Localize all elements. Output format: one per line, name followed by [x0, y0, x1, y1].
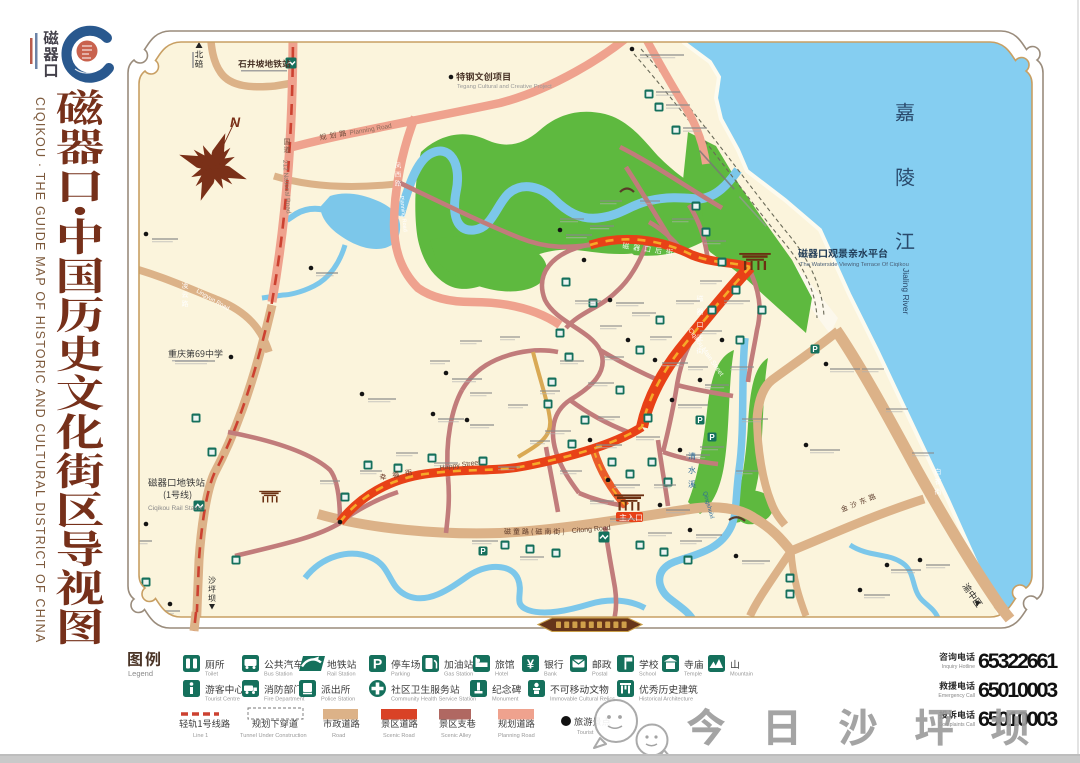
svg-text:P: P [812, 345, 818, 354]
svg-text:Line 1: Line 1 [193, 733, 208, 739]
svg-text:P: P [373, 656, 382, 672]
svg-text:Community Health Service Stati: Community Health Service Station [391, 697, 476, 703]
svg-text:Inquiry Hotline: Inquiry Hotline [942, 664, 975, 670]
svg-text:Bus Station: Bus Station [264, 672, 293, 678]
svg-text:Emergency Call: Emergency Call [938, 693, 975, 699]
svg-text:Tourist Centre: Tourist Centre [205, 697, 240, 703]
svg-text:School: School [639, 672, 656, 678]
svg-text:Monument: Monument [492, 697, 519, 703]
svg-text:Tourist: Tourist [577, 730, 594, 736]
svg-text:Complaints Call: Complaints Call [939, 722, 975, 728]
svg-text:Tegang Cultural and Creative P: Tegang Cultural and Creative Project [457, 84, 552, 90]
svg-text:Scenic Alley: Scenic Alley [441, 733, 471, 739]
svg-text:N: N [230, 114, 241, 130]
svg-text:Planning Road: Planning Road [498, 733, 535, 739]
svg-text:P: P [709, 433, 715, 442]
svg-text:Legend: Legend [128, 669, 153, 678]
svg-text:Hotel: Hotel [495, 672, 508, 678]
svg-text:Fire Department: Fire Department [264, 697, 305, 703]
svg-text:Mountain: Mountain [730, 672, 753, 678]
svg-text:65322661: 65322661 [978, 649, 1058, 673]
svg-text:Tunnel Under Construction: Tunnel Under Construction [240, 733, 307, 739]
svg-text:P: P [480, 547, 486, 556]
svg-text:Police Station: Police Station [321, 697, 355, 703]
svg-text:Postal: Postal [592, 672, 608, 678]
svg-text:Road: Road [332, 733, 345, 739]
svg-text:Historical Architecture: Historical Architecture [639, 697, 693, 703]
svg-text:Bank: Bank [544, 672, 557, 678]
svg-text:CIQIKOU · THE GUIDE MAP OF: CIQIKOU · THE GUIDE MAP OF HISTORIC AND … [33, 97, 47, 643]
svg-text:P: P [697, 416, 703, 425]
svg-text:¥: ¥ [527, 657, 535, 672]
svg-text:Scenic Road: Scenic Road [383, 733, 415, 739]
svg-text:Gas Station: Gas Station [444, 672, 473, 678]
svg-text:Rail Station: Rail Station [327, 672, 356, 678]
svg-text:Toilet: Toilet [205, 672, 219, 678]
svg-text:Jialing River: Jialing River [901, 268, 911, 314]
svg-text:Immovable Cultural Relics: Immovable Cultural Relics [550, 697, 615, 703]
svg-text:Ciqikou Rail Station: Ciqikou Rail Station [148, 505, 205, 512]
svg-text:65010003: 65010003 [978, 678, 1058, 702]
svg-text:Parking: Parking [391, 672, 410, 678]
svg-text:Temple: Temple [684, 672, 702, 678]
svg-text:The Waterside Viewing Terrace: The Waterside Viewing Terrace Of Ciqikou [800, 262, 909, 268]
